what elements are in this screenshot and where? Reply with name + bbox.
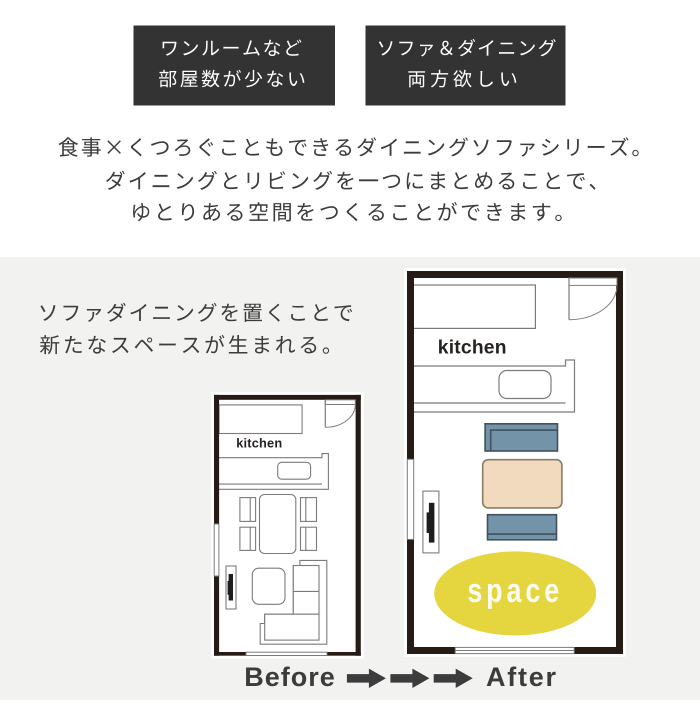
svg-text:kitchen: kitchen [236,435,282,450]
svg-text:After: After [486,662,558,692]
svg-text:space: space [467,571,563,610]
svg-text:kitchen: kitchen [438,338,507,359]
svg-text:Before: Before [244,662,336,692]
